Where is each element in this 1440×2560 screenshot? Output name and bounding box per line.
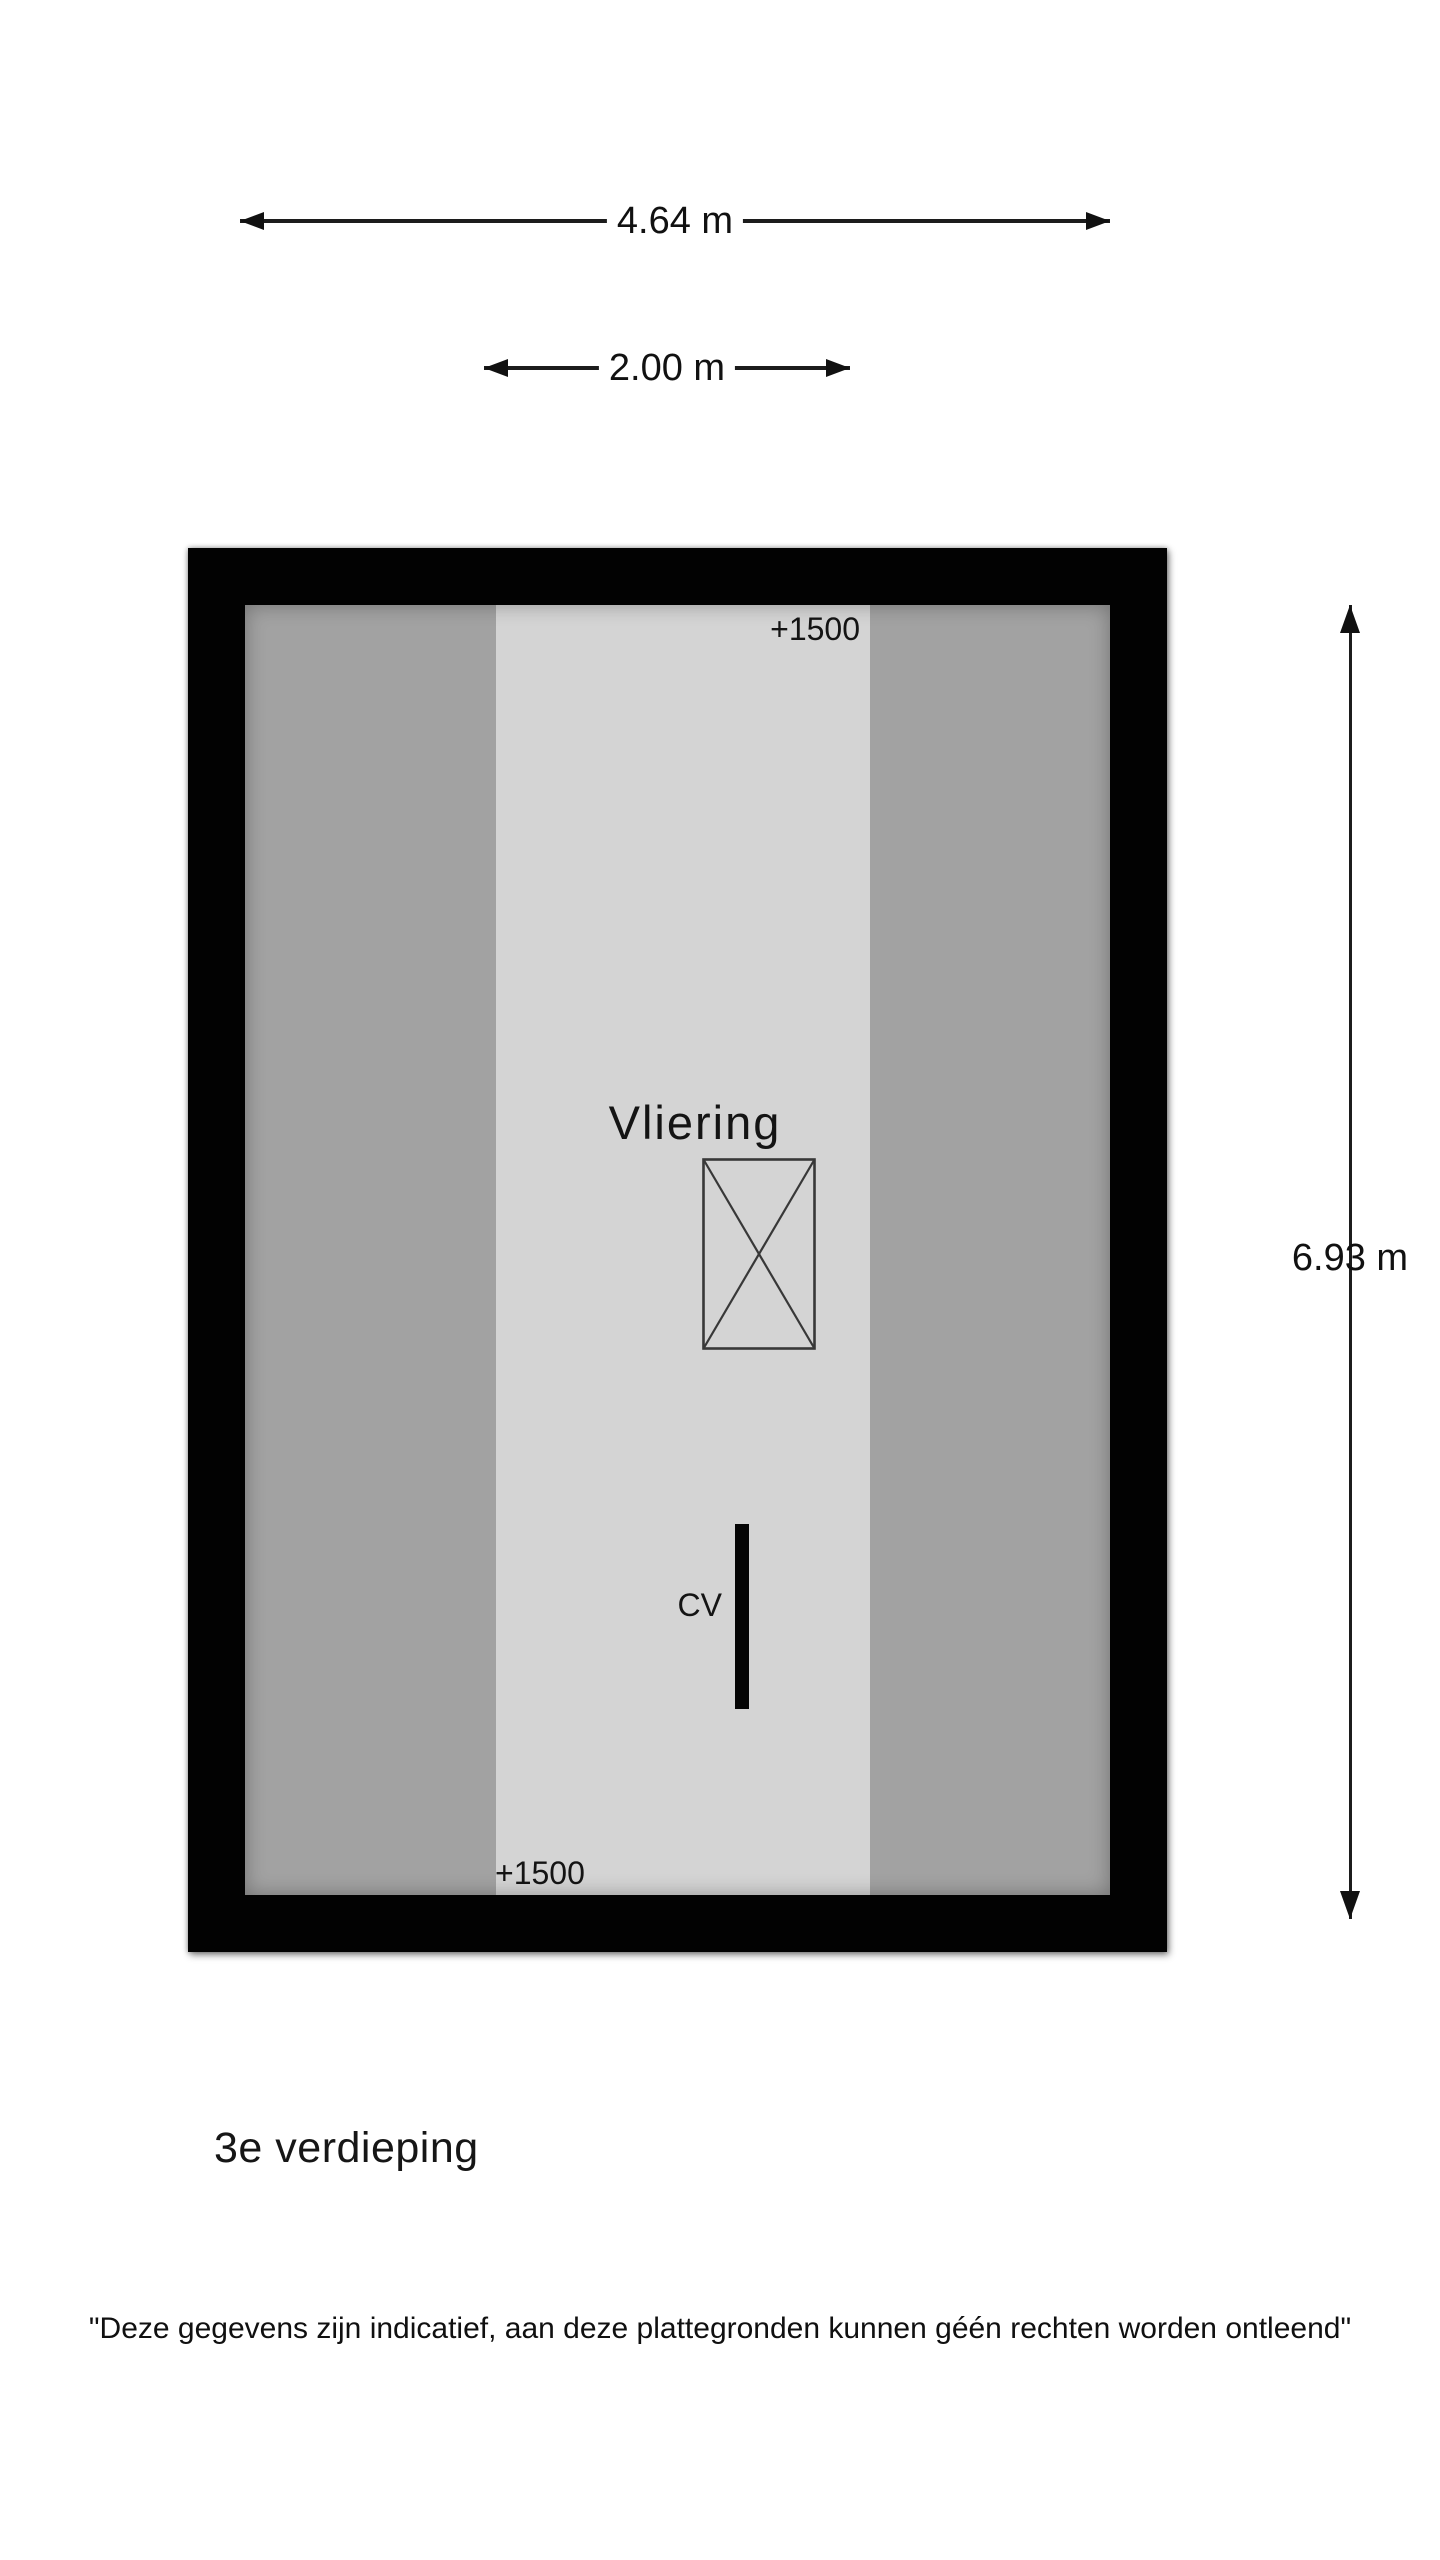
arrow-left-icon	[240, 212, 264, 230]
cv-label: CV	[678, 1583, 722, 1627]
plan-outer-wall: +1500 +1500 Vliering CV	[188, 548, 1167, 1952]
cv-unit-symbol	[735, 1524, 749, 1709]
room-label: Vliering	[609, 1097, 782, 1149]
arrow-right-icon	[1086, 212, 1110, 230]
arrow-left-icon	[484, 359, 508, 377]
dimension-total-width-label: 4.64 m	[607, 199, 743, 243]
height-marker-top: +1500	[770, 607, 860, 651]
floor-low-headroom-right	[870, 605, 1110, 1895]
arrow-down-icon	[1340, 1891, 1360, 1919]
floorplan-page: 4.64 m 2.00 m +1500 +1500 Vliering	[0, 0, 1440, 2560]
height-marker-bottom: +1500	[495, 1851, 585, 1895]
hatch-opening-symbol	[702, 1158, 816, 1350]
floor-title: 3e verdieping	[214, 2123, 479, 2173]
floor-low-headroom-left	[245, 605, 496, 1895]
arrow-up-icon	[1340, 605, 1360, 633]
attic-floor: +1500 +1500 Vliering CV	[245, 605, 1110, 1895]
dimension-total-depth-label: 6.93 m	[1292, 1236, 1408, 1280]
hatch-x-icon	[702, 1158, 816, 1350]
disclaimer-text: "Deze gegevens zijn indicatief, aan deze…	[0, 2310, 1440, 2348]
arrow-right-icon	[826, 359, 850, 377]
dimension-center-width-label: 2.00 m	[599, 346, 735, 390]
